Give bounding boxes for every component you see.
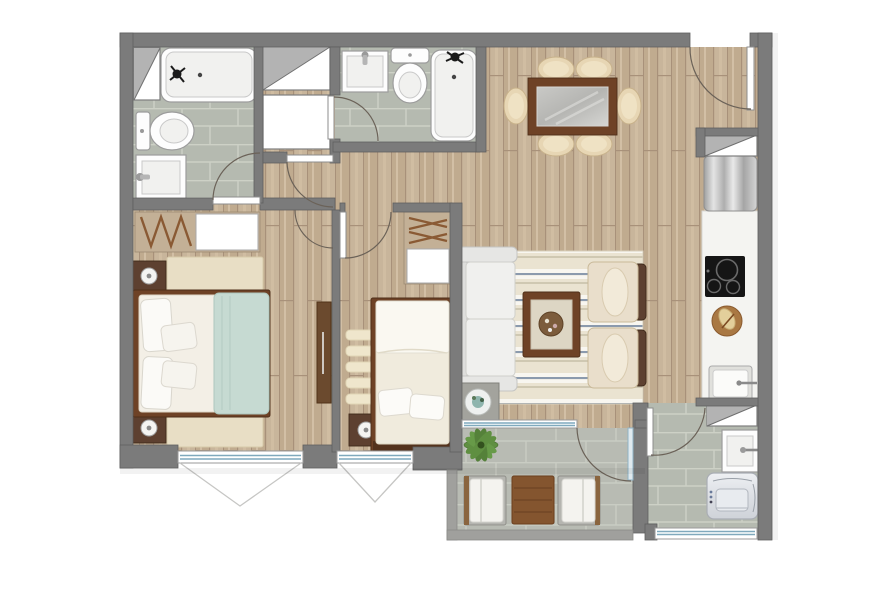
kitchen — [702, 156, 758, 401]
outdoor-table — [512, 476, 554, 524]
dining-table — [528, 78, 617, 135]
shadow — [772, 33, 778, 540]
nightstand — [133, 261, 166, 291]
bedroom1-closet — [135, 212, 260, 252]
shadow — [120, 468, 645, 474]
floor-plan-canvas — [0, 0, 890, 600]
wall-terrace-door-stub — [635, 420, 648, 428]
double-bed — [133, 290, 270, 417]
sink — [342, 51, 388, 92]
armchair — [588, 262, 646, 322]
wall-hall-nook — [263, 152, 287, 163]
dining-chair — [538, 132, 574, 156]
kitchen-sink — [709, 366, 757, 401]
dining-chair — [504, 88, 528, 124]
vent-shaft-icon — [263, 47, 330, 90]
wall-bed2-top — [393, 203, 452, 212]
laundry-door-leaf — [647, 408, 653, 456]
wall-kitchen-shaft-side — [696, 128, 705, 157]
wall-bath2-bottom — [333, 142, 480, 152]
pillow — [161, 360, 198, 389]
exterior-wall-right — [758, 33, 772, 540]
laundry-window — [655, 528, 757, 539]
duct-box — [263, 95, 330, 149]
floor-plan — [0, 0, 890, 600]
vent-shaft-icon — [134, 48, 160, 100]
bathroom2-door-leaf — [328, 96, 334, 139]
wall-bath2-left — [330, 47, 340, 95]
wall-bath1-right — [254, 47, 263, 203]
single-bed — [371, 298, 453, 453]
wall-kitchen-bottom — [696, 398, 758, 406]
wall-bath1-bed1 — [133, 198, 213, 210]
bedroom2-closet — [404, 212, 451, 284]
drain-icon — [452, 75, 456, 79]
exterior-wall-top — [120, 33, 690, 47]
railing-bottom — [447, 530, 633, 540]
nightstand — [133, 413, 166, 443]
dining-chair — [576, 132, 612, 156]
pillow — [409, 394, 445, 421]
bathtub — [431, 50, 477, 141]
cooktop — [705, 256, 745, 297]
exterior-wall-bottom — [120, 445, 178, 468]
vent-shaft-icon — [705, 135, 757, 156]
pillow — [378, 387, 415, 416]
dining-chair — [617, 88, 641, 124]
pillow — [160, 322, 197, 352]
wall-bath2-right — [476, 47, 486, 152]
wall-bed1-bed2 — [332, 210, 340, 452]
lounge-chair — [558, 476, 600, 525]
refrigerator — [704, 156, 757, 211]
toilet — [391, 48, 429, 103]
laundry-sink — [722, 430, 758, 472]
armchair — [588, 328, 646, 388]
wall-bed2-right — [450, 203, 462, 452]
wall-bath1-bed1 — [260, 198, 335, 210]
lounge-chair — [464, 476, 506, 525]
bedroom2-window — [337, 451, 413, 502]
washing-machine — [707, 473, 758, 519]
sink — [136, 155, 186, 200]
cutting-board — [712, 306, 742, 336]
table-decor-icon — [539, 312, 563, 336]
bathroom1-door-leaf — [213, 197, 260, 204]
wall-bed2-top — [340, 203, 345, 212]
dining-chair — [538, 57, 574, 81]
side-table — [457, 383, 499, 421]
dining-chair — [576, 57, 612, 81]
vent-shaft-icon — [707, 405, 757, 426]
bedroom2-door-leaf — [340, 212, 346, 258]
exterior-wall-left — [120, 33, 133, 468]
bedroom1-window — [178, 451, 303, 506]
entry-door-leaf — [747, 47, 754, 110]
drain-icon — [198, 73, 202, 77]
sliding-door-panel — [317, 302, 331, 403]
toilet — [136, 112, 194, 150]
hallway-door-leaf — [287, 155, 333, 162]
coffee-table — [523, 292, 580, 357]
railing-left — [447, 470, 457, 540]
folded-duvet — [376, 301, 449, 353]
